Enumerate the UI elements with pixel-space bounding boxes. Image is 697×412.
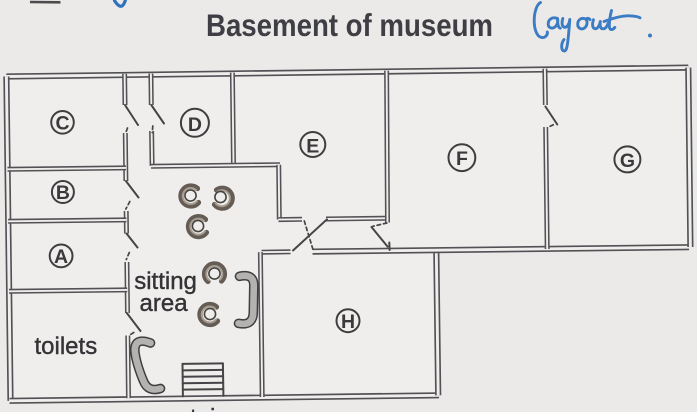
svg-text:B: B xyxy=(56,182,70,204)
svg-text:E: E xyxy=(306,135,319,157)
svg-text:area: area xyxy=(140,290,189,317)
svg-text:G: G xyxy=(620,150,635,172)
svg-text:stairs: stairs xyxy=(178,405,235,412)
svg-text:C: C xyxy=(55,112,69,134)
svg-text:toilets: toilets xyxy=(35,333,98,360)
svg-text:H: H xyxy=(341,311,355,333)
svg-text:D: D xyxy=(188,114,202,136)
svg-text:F: F xyxy=(456,148,468,170)
svg-text:A: A xyxy=(54,246,68,268)
svg-text:Basement of museum: Basement of museum xyxy=(206,7,493,43)
